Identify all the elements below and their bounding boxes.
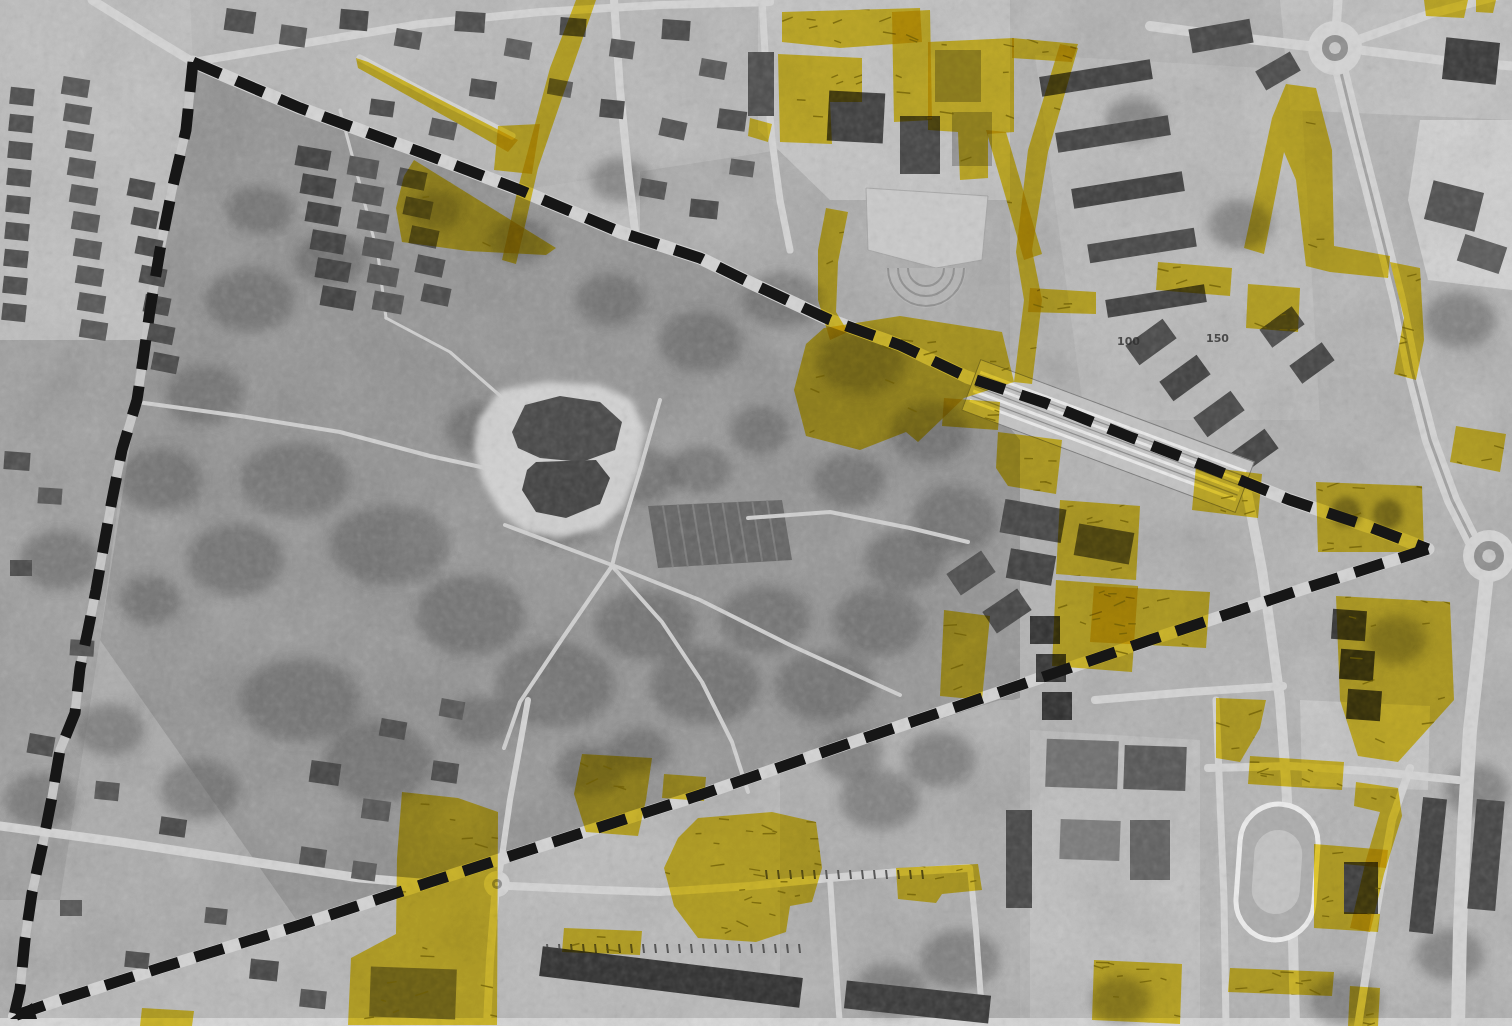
- annotation-scribble: [944, 625, 957, 626]
- h-rows-bar: [1156, 262, 1232, 296]
- house-number-label: 150: [1206, 332, 1229, 345]
- h-rows-block-east: [1246, 284, 1300, 332]
- h-west-towers-strip: [940, 610, 990, 700]
- annotation-scribble: [1067, 506, 1073, 507]
- annotation-scribble: [614, 786, 625, 787]
- h-campus-mid-strip: [892, 10, 932, 122]
- annotation-scribble: [420, 956, 434, 957]
- annotation-scribble: [739, 890, 745, 891]
- annotation-scribble: [1327, 543, 1334, 544]
- annotation-scribble: [1173, 267, 1181, 268]
- house-number-label: 100: [1117, 335, 1140, 348]
- h-rows-strip-south: [562, 928, 642, 955]
- aerial-map: 100150: [0, 0, 1512, 1026]
- annotation-scribble: [423, 197, 429, 198]
- annotation-scribble: [1353, 488, 1365, 489]
- annotation-scribble: [1345, 597, 1351, 598]
- annotation-scribble: [988, 415, 1001, 416]
- h-nw-blob: [494, 124, 540, 174]
- annotation-scribble: [714, 843, 720, 844]
- annotation-scribble: [450, 819, 455, 820]
- aerial-photo-figure: 100150: [0, 0, 1512, 1026]
- annotation-scribble: [1102, 967, 1109, 968]
- annotation-scribble: [421, 804, 430, 805]
- annotation-scribble: [1422, 623, 1429, 624]
- annotation-scribble: [719, 819, 729, 820]
- annotation-scribble: [1117, 976, 1123, 977]
- h-cross-lane: [1028, 288, 1096, 314]
- h-bottom-stub: [1348, 986, 1380, 1026]
- annotation-scribble: [1119, 633, 1127, 634]
- annotation-scribble: [1280, 972, 1293, 973]
- h-top-edge-2: [1476, 0, 1496, 13]
- annotation-scribble: [907, 894, 916, 895]
- annotation-scribble: [1042, 52, 1048, 53]
- annotation-scribble: [927, 342, 936, 343]
- annotation-scribble: [1231, 748, 1239, 749]
- h-top-edge-1: [1424, 0, 1468, 18]
- annotation-scribble: [752, 902, 762, 903]
- h-mid-blocks-1: [1056, 500, 1140, 580]
- h-boulevard-north-strip: [942, 398, 1000, 430]
- annotation-scribble: [1322, 916, 1329, 917]
- annotation-scribble: [462, 838, 473, 839]
- annotation-scribble: [1327, 901, 1334, 902]
- annotation-scribble: [795, 895, 800, 896]
- h-market-south-block: [1192, 466, 1262, 518]
- h-bottom-edge-small: [140, 1008, 194, 1026]
- annotation-scribble: [1281, 314, 1286, 315]
- annotation-scribble: [813, 116, 823, 117]
- annotation-scribble: [1350, 658, 1362, 659]
- annotation-scribble: [746, 831, 753, 832]
